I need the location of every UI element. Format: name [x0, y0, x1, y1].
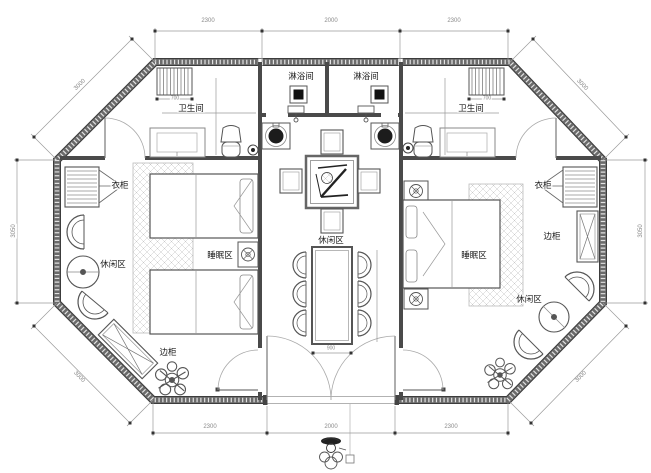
round-table-left	[67, 256, 99, 288]
room-label-lounge-right: 休闲区	[515, 295, 543, 304]
shower-drain-left	[290, 86, 307, 103]
side-cabinet-right	[577, 211, 598, 262]
dining-chair	[293, 310, 306, 336]
vanity-right	[440, 128, 495, 157]
door-bathroom-left	[105, 118, 145, 158]
dim-top-center: 2000	[323, 18, 338, 24]
room-label-bathroom-right: 卫生间	[457, 104, 485, 113]
door-bathroom-right	[516, 118, 556, 158]
stool-top	[321, 130, 343, 154]
lounge-chair-right-1	[565, 265, 601, 301]
room-label-sleep-right: 睡眠区	[460, 251, 488, 260]
dim-dining-width: 900	[326, 347, 336, 352]
tea-table	[306, 156, 358, 208]
washbasin-left	[262, 123, 290, 149]
room-label-bathroom-left: 卫生间	[177, 104, 205, 113]
waste-bin-left	[248, 145, 258, 155]
door-bedroom-right	[403, 350, 446, 392]
shower-drain-right	[371, 86, 388, 103]
dining-chair	[358, 252, 371, 278]
dim-top-left: 2300	[200, 18, 215, 24]
dim-side-right: 3050	[638, 223, 644, 238]
towel-rack-left	[157, 68, 192, 95]
round-table-right	[539, 302, 569, 332]
room-label-lounge-center: 休闲区	[317, 236, 345, 245]
dim-rack-right: 700	[482, 97, 492, 102]
plant-right	[485, 358, 516, 389]
lounge-chair-right-2	[507, 330, 543, 366]
washbasin-right	[371, 123, 399, 149]
dim-bottom-right: 2300	[443, 424, 458, 430]
label-wardrobe-left: 衣柜	[110, 181, 129, 190]
bed-left-2	[150, 270, 258, 334]
room-label-shower-right: 淋浴间	[352, 72, 380, 81]
room-label-lounge-left: 休闲区	[99, 260, 127, 269]
nightstand-left	[238, 242, 258, 267]
entrance-figure	[320, 437, 347, 469]
dining-chair	[358, 310, 371, 336]
bed-right-double	[403, 200, 500, 288]
dim-bottom-left: 2300	[202, 424, 217, 430]
bed-left-1	[150, 174, 258, 238]
dim-side-left: 3050	[11, 223, 17, 238]
toilet-left	[221, 126, 241, 158]
vanity-left	[150, 128, 205, 157]
room-label-sleep-left: 睡眠区	[206, 251, 234, 260]
towel-rack-right	[469, 68, 504, 95]
dim-rack-left: 700	[170, 97, 180, 102]
room-label-shower-left: 淋浴间	[287, 72, 315, 81]
waste-bin-right	[403, 143, 413, 153]
dining-chair	[293, 252, 306, 278]
lounge-chair-left-1	[67, 215, 84, 249]
dining-chair	[293, 281, 306, 307]
stool-left	[280, 169, 302, 193]
plant-left	[156, 362, 189, 395]
nightstand-right-bottom	[404, 289, 428, 309]
toilet-right	[413, 126, 433, 158]
dining-table	[312, 247, 352, 344]
stool-bottom	[321, 209, 343, 233]
label-side-cabinet-left: 边柜	[158, 348, 177, 357]
nightstand-right-top	[404, 181, 428, 201]
dining-chair	[358, 281, 371, 307]
floor-plan: 卫生间 卫生间 淋浴间 淋浴间 衣柜 衣柜 边柜 边柜 睡眠区 睡眠区 休闲区 …	[0, 0, 651, 473]
dim-top-right: 2300	[446, 18, 461, 24]
label-side-cabinet-right: 边柜	[542, 232, 561, 241]
dim-bottom-center: 2000	[323, 424, 338, 430]
stool-right	[358, 169, 380, 193]
door-bedroom-left	[216, 350, 259, 392]
label-wardrobe-right: 衣柜	[533, 181, 552, 190]
